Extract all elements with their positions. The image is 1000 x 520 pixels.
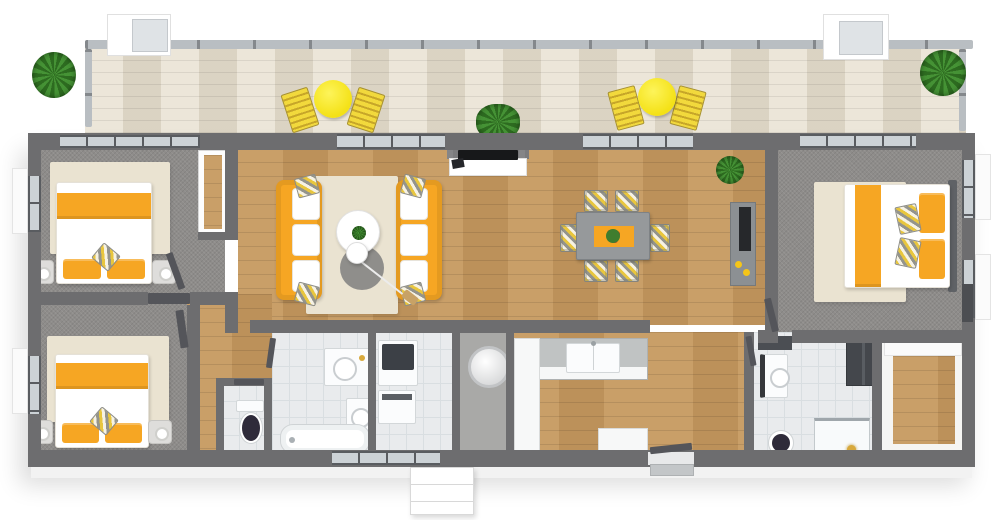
bed-double	[55, 354, 149, 448]
sliding-door-master-top	[800, 134, 916, 148]
dining-chair	[584, 190, 608, 212]
roof-box-right	[823, 14, 889, 60]
window-bedroom2-left	[28, 356, 41, 414]
wall-bedroom1-living-lower	[225, 292, 238, 333]
deck-floor	[85, 48, 966, 133]
sliding-door-bathroom-rear	[332, 451, 440, 465]
window-sill-outer	[12, 168, 28, 234]
nightstand	[148, 420, 172, 444]
deck-palm-plant	[920, 50, 966, 96]
sideboard	[730, 202, 756, 286]
bathroom-vanity	[324, 348, 374, 386]
dining-chair	[615, 260, 639, 282]
hallway-right-floor	[648, 332, 750, 452]
flower-centerpiece	[606, 229, 620, 243]
roof-box-panel	[839, 21, 883, 55]
wall-band-living	[250, 320, 650, 333]
roof-box-panel	[132, 19, 168, 52]
wall-laundry-utility	[452, 332, 460, 452]
table-plant	[352, 226, 366, 240]
dining-plant	[716, 156, 744, 184]
sliding-door-dining	[583, 134, 693, 149]
wall-closet-bottom	[198, 232, 226, 240]
dryer	[378, 390, 416, 424]
dining-chair	[650, 224, 670, 252]
closet	[198, 150, 226, 234]
entry-mat	[650, 464, 694, 476]
deck-railing-left	[85, 49, 92, 127]
walk-in-closet-inset	[893, 356, 955, 444]
tv	[458, 150, 518, 160]
kitchen-counter-left	[514, 338, 540, 452]
wall-wc-right	[264, 384, 272, 452]
sideboard-decor	[739, 207, 751, 251]
window-sill-outer	[975, 254, 991, 320]
toilet-tank	[236, 400, 264, 412]
accent-pillow	[894, 203, 921, 235]
water-heater	[468, 346, 510, 388]
pocket-door-bedrooms	[148, 293, 190, 304]
toilet	[239, 412, 263, 444]
wall-utility-kitchen	[506, 332, 514, 452]
wall-wc-left	[216, 384, 224, 452]
window-bedroom1-left	[28, 176, 41, 232]
door-wc	[234, 379, 264, 385]
kitchen-sink	[566, 343, 620, 373]
kitchen-counter-bottom	[598, 428, 648, 452]
sofa-right	[396, 180, 442, 300]
window-bedroom1-top	[60, 135, 200, 148]
lemon	[743, 269, 750, 276]
accent-pillow	[894, 237, 921, 269]
sliding-door-living	[337, 134, 445, 149]
floor-plan	[0, 0, 1000, 520]
dining-chair	[584, 260, 608, 282]
ensuite-shower	[814, 418, 870, 452]
bed-double	[56, 182, 152, 284]
window-master-right-1	[962, 160, 975, 218]
dining-table	[576, 212, 650, 260]
wall-bedroom1-living	[225, 140, 238, 240]
deck-bistro-table	[638, 78, 676, 116]
dining-chair	[615, 190, 639, 212]
wall-bath-laundry	[368, 332, 376, 452]
roof-box-left	[107, 14, 171, 56]
deck-potted-plant	[32, 52, 76, 98]
window-sill-outer	[12, 348, 28, 414]
sofa-left	[276, 180, 322, 300]
wall-ensuite-closet	[872, 332, 882, 452]
wall-bedrooms-divider-a	[28, 292, 148, 305]
window-sill-outer	[975, 154, 991, 220]
arc-lamp-shade	[346, 242, 368, 264]
entry-steps	[410, 467, 474, 515]
lemon	[735, 261, 742, 268]
master-right-dark-panel	[962, 284, 973, 322]
ensuite-vanity	[760, 354, 788, 398]
bed-double-master	[844, 184, 950, 288]
wall-bottom	[28, 450, 975, 467]
washer	[378, 340, 418, 386]
deck-bistro-table	[314, 80, 352, 118]
wall-bedrooms-divider-b	[190, 292, 225, 305]
wall-bedroom2-hall	[187, 305, 200, 452]
